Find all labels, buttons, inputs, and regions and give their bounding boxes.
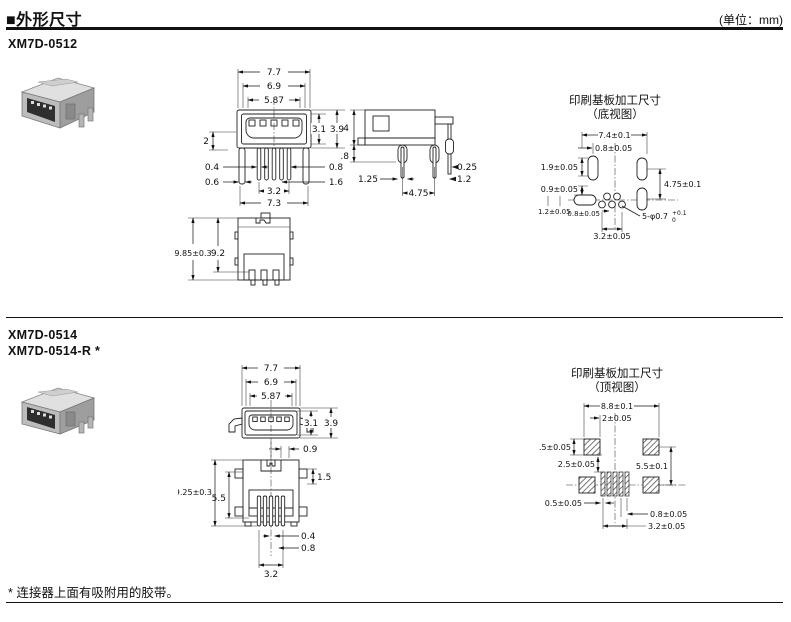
dim-pcb-0-8: 0.8±0.05 — [595, 144, 632, 153]
dim-side-1-8: 1.8 — [340, 152, 349, 162]
pcb-title: 印刷基板加工尺寸 — [569, 93, 661, 107]
dim-width-7-7: 7.7 — [264, 364, 278, 374]
dim-height-3-1: 3.1 — [312, 125, 326, 135]
s1-front-view-drawing: 7.7 6.9 5.87 3.1 3.9 2 0.4 0.6 0.8 — [198, 58, 353, 208]
s1-pcb-pattern-drawing: 印刷基板加工尺寸 （底视图） 7.4±0.1 0.8±0.05 1.9±0.05… — [538, 88, 791, 241]
model-label-xm7d-0512: XM7D-0512 — [8, 37, 77, 51]
pcb-subtitle: （底视图） — [586, 107, 644, 121]
dim-pcb-2: 2±0.05 — [602, 414, 632, 423]
dim-side-4: 4 — [343, 124, 349, 134]
dim-pcb-holes-tol-zero: 0 — [672, 217, 676, 224]
dim-pcb-0-9: 0.9±0.05 — [541, 185, 578, 194]
dim-pin-0-4: 0.4 — [301, 532, 316, 542]
dim-bottom-9-85: 9.85±0.3 — [174, 249, 211, 258]
dim-pcb-3-2: 3.2±0.05 — [593, 232, 630, 241]
dim-span-3-2: 3.2 — [264, 570, 278, 580]
dim-pcb-3-2: 3.2±0.05 — [648, 522, 685, 531]
dim-side-1-2: 1.2 — [457, 175, 471, 185]
s2-bottom-view-drawing: 0.9 1.5 9.25±0.3 5.5 0.4 0.8 3.2 — [178, 438, 348, 580]
dim-leg-0-6: 0.6 — [205, 178, 220, 188]
dim-right-1-5: 1.5 — [317, 473, 331, 483]
dim-height-3-9: 3.9 — [324, 419, 339, 429]
dim-pcb-1-2: 1.2±0.05 — [538, 208, 571, 216]
footnote: * 连接器上面有吸附用的胶带。 — [8, 582, 179, 601]
datasheet-page: ■外形尺寸 (单位：mm) XM7D-0512 7.7 6.9 5.87 — [0, 0, 791, 622]
dim-pcb-2-5-inner: 2.5±0.05 — [558, 460, 595, 469]
dim-side-1-25: 1.25 — [358, 175, 378, 185]
dim-height-3-1: 3.1 — [304, 419, 318, 429]
product-photo — [8, 376, 108, 442]
dim-pcb-8-8: 8.8±0.1 — [601, 402, 633, 411]
dim-height-5-5: 5.5 — [212, 494, 226, 504]
dim-pin-0-4: 0.4 — [205, 163, 220, 173]
s2-pcb-pattern-drawing: 印刷基板加工尺寸 （顶视图） 8.8±0.1 2±0.05 2.5±0.05 2… — [538, 361, 791, 538]
dim-pcb-5-5: 5.5±0.1 — [636, 462, 668, 471]
product-photo — [8, 68, 108, 134]
section-divider — [6, 317, 783, 318]
dim-span-7-3: 7.3 — [267, 199, 281, 208]
dim-pcb-4-75: 4.75±0.1 — [664, 180, 701, 189]
unit-note: (单位：mm) — [719, 11, 783, 28]
header-rule — [6, 27, 783, 30]
dim-width-6-9: 6.9 — [264, 378, 279, 388]
dim-pcb-holes: 5-φ0.7 — [642, 212, 668, 221]
dim-pcb-0-5: 0.5±0.05 — [545, 499, 582, 508]
dim-span-3-2: 3.2 — [267, 187, 281, 197]
dim-left-2: 2 — [203, 137, 209, 147]
dim-pcb-holes-tol-plus: +0.1 — [672, 210, 687, 217]
dim-width-7-7: 7.7 — [267, 68, 281, 78]
dim-pitch-0-8: 0.8 — [301, 544, 316, 554]
dim-pcb-1-9: 1.9±0.05 — [541, 163, 578, 172]
dim-pcb-2-5-left: 2.5±0.05 — [538, 443, 571, 452]
dim-bottom-9-2: 9.2 — [211, 249, 225, 259]
s1-side-view-drawing: 4 1.8 0.25 1.2 1.25 4.75 — [340, 93, 495, 208]
footer-rule — [6, 602, 783, 603]
model-label-xm7d-0514: XM7D-0514 — [8, 328, 77, 342]
pcb-title: 印刷基板加工尺寸 — [571, 366, 663, 380]
dim-width-6-9: 6.9 — [267, 82, 282, 92]
model-label-xm7d-0514-r: XM7D-0514-R * — [8, 344, 100, 358]
dim-pcb-7-4: 7.4±0.1 — [598, 131, 630, 140]
dim-pcb-0-8b: 0.8±0.05 — [567, 210, 600, 218]
dim-height-9-25: 9.25±0.3 — [178, 488, 212, 497]
dim-side-4-75: 4.75 — [408, 189, 428, 199]
dim-side-0-25: 0.25 — [457, 163, 477, 173]
s1-bottom-view-drawing: 9.85±0.3 9.2 — [158, 210, 328, 310]
dim-pcb-0-8: 0.8±0.05 — [650, 510, 687, 519]
pcb-subtitle: （顶视图） — [588, 380, 646, 394]
dim-top-0-9: 0.9 — [303, 445, 318, 455]
